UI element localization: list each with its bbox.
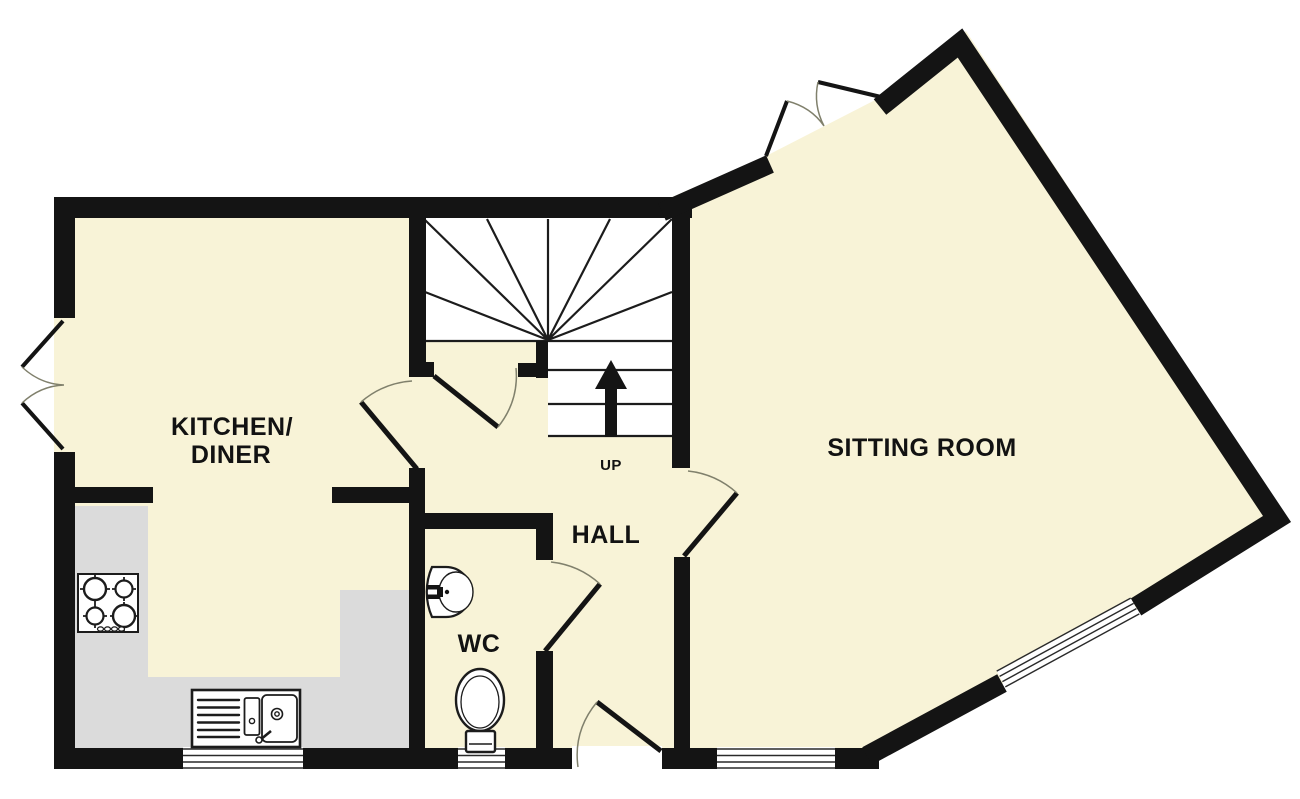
front-door-opening bbox=[572, 746, 662, 770]
wall-bottom-3 bbox=[505, 748, 572, 769]
wall-bottom-4 bbox=[662, 748, 717, 769]
kitchen-diner-label-line2: DINER bbox=[191, 441, 271, 469]
wall-kitchen-stub-left bbox=[54, 487, 153, 503]
wc-label: WC bbox=[458, 630, 501, 658]
wall-stair-left bbox=[409, 218, 426, 377]
wall-kitchen-hall bbox=[409, 468, 425, 750]
wall-left-upper bbox=[54, 197, 75, 318]
stairwell-winders bbox=[426, 218, 674, 341]
floor-plan-page: KITCHEN/ DINER SITTING ROOM HALL WC UP bbox=[0, 0, 1300, 799]
floor-areas bbox=[54, 31, 1285, 769]
wall-wc-right-upper bbox=[536, 513, 553, 560]
kitchen-diner-label-line1: KITCHEN/ bbox=[171, 413, 293, 441]
wall-bottom-2 bbox=[303, 748, 458, 769]
wall-understair-b bbox=[518, 363, 548, 377]
sitting-room-label: SITTING ROOM bbox=[827, 434, 1016, 462]
wall-stair-left-nub bbox=[426, 362, 434, 377]
wall-sitting-left-upper bbox=[672, 218, 690, 468]
wall-top bbox=[54, 197, 692, 218]
window-kitchen bbox=[183, 747, 303, 770]
wall-wc-right-lower bbox=[536, 651, 553, 750]
sink-icon bbox=[192, 690, 300, 747]
floor-plan-drawing: KITCHEN/ DINER SITTING ROOM HALL WC UP bbox=[0, 0, 1300, 799]
window-sitting-bottom bbox=[717, 747, 835, 770]
wall-sitting-left-lower bbox=[674, 557, 690, 750]
hob-icon bbox=[78, 574, 138, 632]
up-label: UP bbox=[600, 457, 622, 474]
hall-label: HALL bbox=[572, 521, 641, 549]
wall-bottom-1 bbox=[54, 748, 183, 769]
wall-wc-top bbox=[425, 513, 553, 529]
